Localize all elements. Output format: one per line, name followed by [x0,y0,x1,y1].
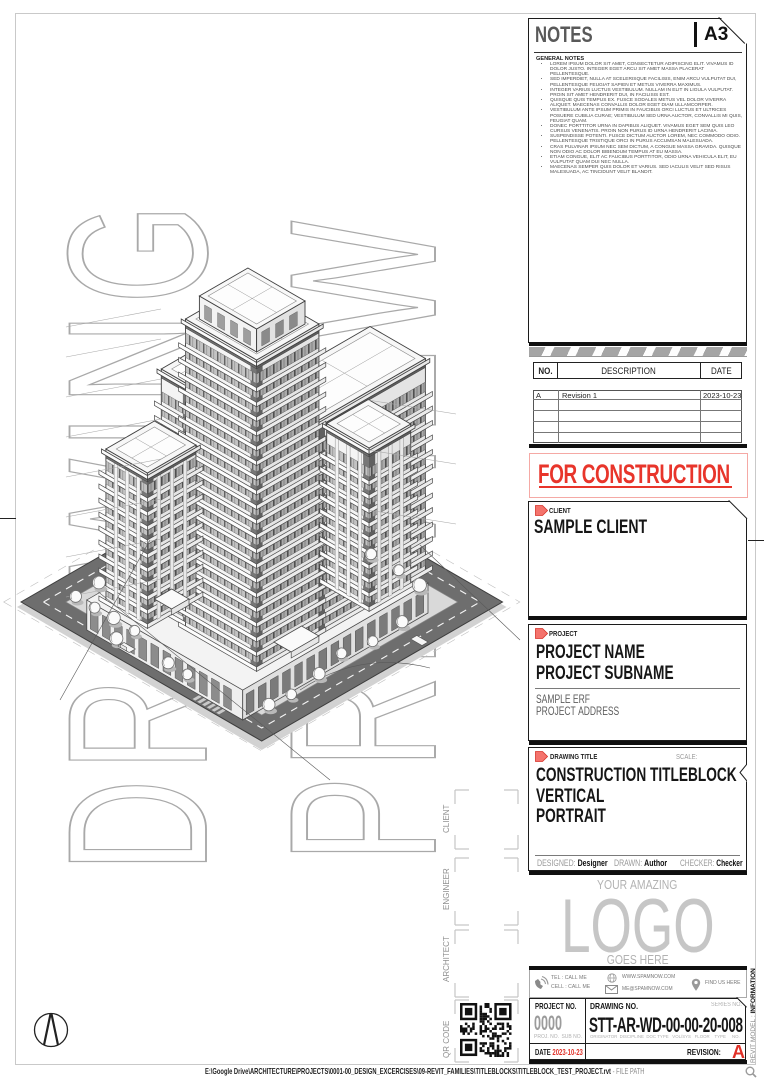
svg-text:ARCHITECT: ARCHITECT [442,936,451,982]
svg-text:QR CODE: QR CODE [442,1021,451,1058]
svg-text:ENGINEER: ENGINEER [442,868,451,910]
svg-text:CLIENT: CLIENT [442,804,451,833]
